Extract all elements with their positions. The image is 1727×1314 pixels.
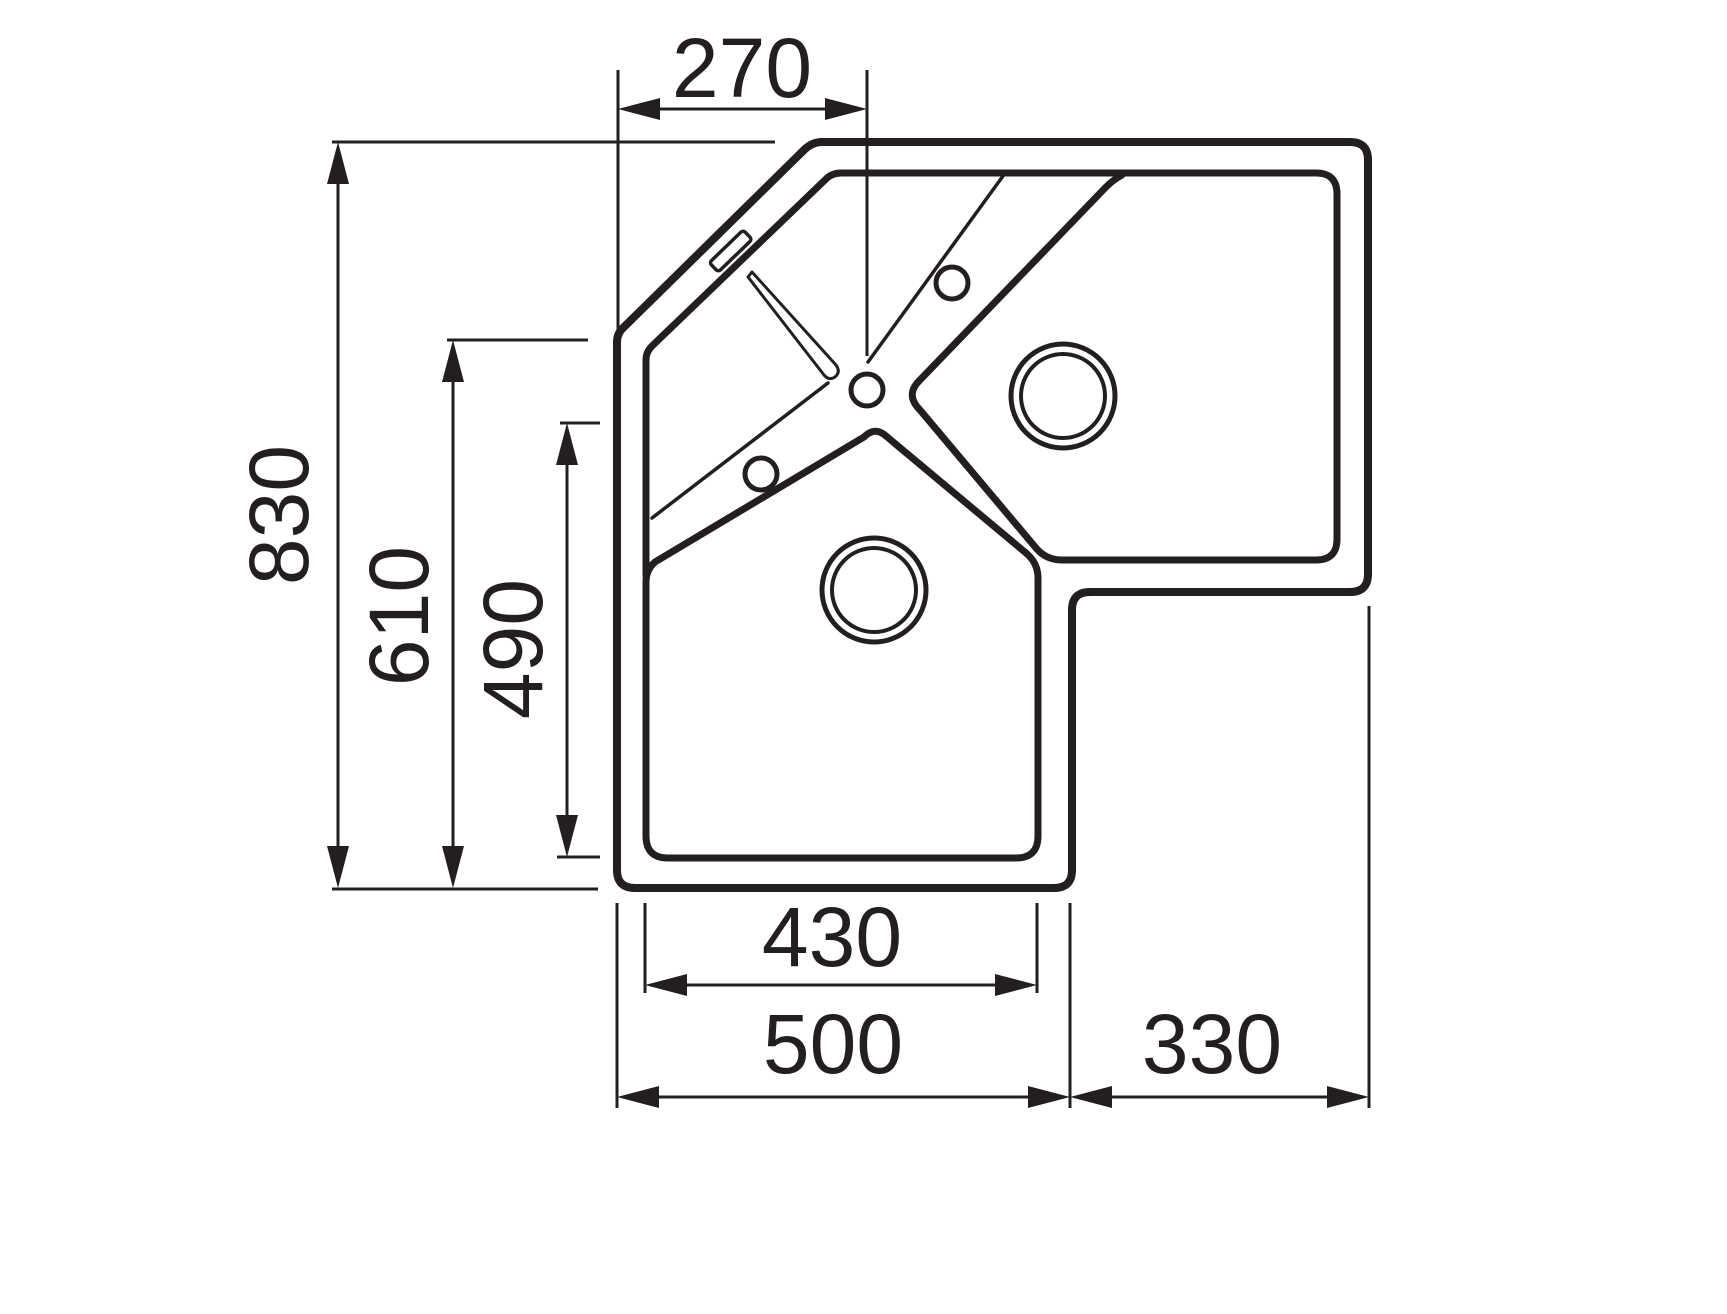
dimension-bottom-330: 330	[1070, 606, 1369, 1108]
arrowhead-left	[645, 974, 687, 996]
arrowhead-down	[327, 846, 349, 888]
arrowhead-left	[617, 1086, 659, 1108]
arrowhead-left	[1070, 1086, 1112, 1108]
drain-bottom-inner-ring	[832, 548, 916, 632]
arrowhead-up	[327, 142, 349, 184]
arrowhead-down	[442, 846, 464, 888]
corner-sink-dimension-drawing: 270 830 610 490	[0, 0, 1727, 1314]
drain-bottom-outer-ring	[822, 538, 926, 642]
tap-hole-lower-left	[745, 458, 777, 490]
arrowhead-right	[995, 974, 1037, 996]
dimension-label-500: 500	[763, 997, 903, 1091]
bottom-bowl-outline	[646, 431, 1038, 858]
dimension-left-490: 490	[466, 423, 600, 857]
drain-right-inner-ring	[1021, 354, 1105, 438]
dimension-bottom-430: 430	[645, 890, 1037, 996]
corner-crease-sliver	[748, 272, 838, 379]
dimension-annotations: 270 830 610 490	[232, 21, 1369, 1108]
dimension-label-830: 830	[232, 445, 326, 585]
arrowhead-down	[556, 815, 578, 857]
arrowhead-up	[556, 423, 578, 465]
dimension-label-430: 430	[762, 890, 902, 984]
dimension-label-490: 490	[466, 579, 560, 719]
arrowhead-left	[618, 98, 660, 120]
arrowhead-up	[442, 340, 464, 382]
inner-rim-and-right-bowl-outline	[646, 173, 1337, 576]
dimension-label-610: 610	[352, 546, 446, 686]
arrowhead-right	[825, 98, 867, 120]
drainer-groove-lower-left	[652, 383, 828, 518]
drainer-groove-upper-right	[868, 176, 1003, 362]
drain-right-bowl	[1011, 344, 1115, 448]
sink-outlines	[617, 142, 1368, 888]
tap-hole-upper-right	[936, 267, 968, 299]
tap-hole-center	[851, 374, 883, 406]
arrowhead-right	[1327, 1086, 1369, 1108]
drain-bottom-bowl	[822, 538, 926, 642]
drain-right-outer-ring	[1011, 344, 1115, 448]
dimension-label-270: 270	[672, 21, 812, 115]
dimension-label-330: 330	[1142, 997, 1282, 1091]
dimension-top-270: 270	[618, 21, 867, 356]
arrowhead-right	[1028, 1086, 1070, 1108]
